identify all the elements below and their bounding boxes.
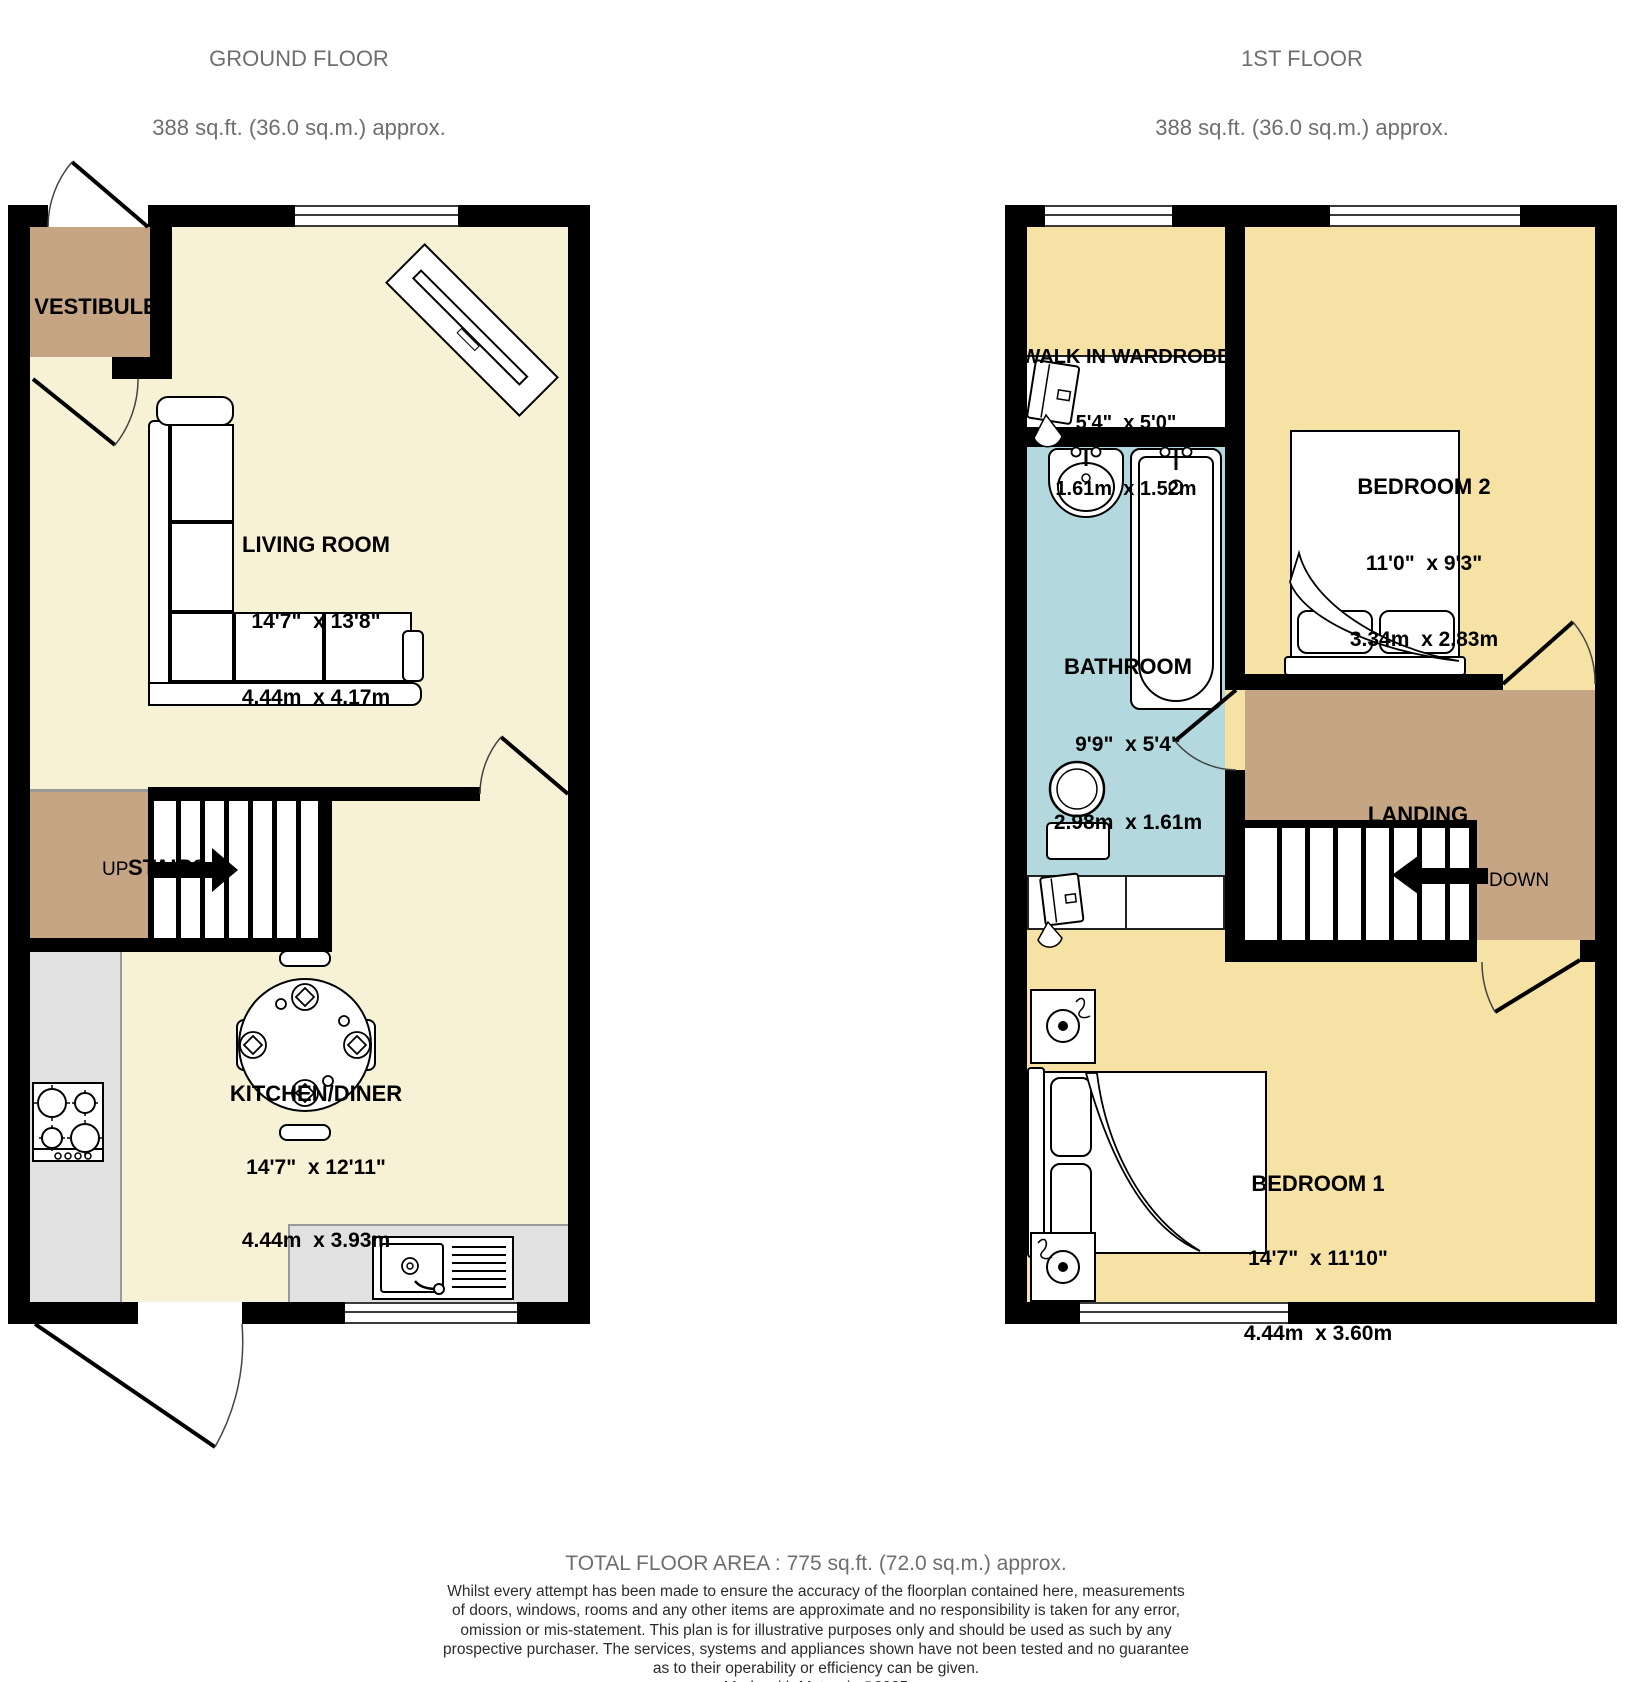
- hob-control-line: [34, 1148, 102, 1150]
- kitchen-window: [345, 1302, 517, 1324]
- gf-title-line1: GROUND FLOOR: [152, 47, 445, 70]
- down-label: DOWN: [1489, 868, 1549, 893]
- sofa-seat-corner: [170, 612, 234, 682]
- gf-title-line2: 388 sq.ft. (36.0 sq.m.) approx.: [152, 116, 445, 139]
- vestibule-label: VESTIBULE: [34, 294, 157, 319]
- gf-wall-bottom-2: [242, 1302, 345, 1324]
- disclaimer-line: omission or mis-statement. This plan is …: [0, 1621, 1632, 1640]
- gf-wall-right: [568, 205, 590, 1324]
- total-floor-area: TOTAL FLOOR AREA : 775 sq.ft. (72.0 sq.m…: [0, 1552, 1632, 1576]
- ff-wall-right: [1595, 205, 1617, 1324]
- rear-door-arc: [215, 1324, 243, 1447]
- disclaimer-line: prospective purchaser. The services, sys…: [0, 1640, 1632, 1659]
- sofa-armrest-right: [402, 630, 424, 682]
- sofa-seat: [170, 424, 234, 522]
- gf-wall-left: [8, 205, 30, 1324]
- wardrobe-label: WALK IN WARDROBE 5'4" x 5'0" 1.61m x 1.5…: [1022, 302, 1231, 544]
- bathroom-wall-lower: [1225, 770, 1245, 940]
- stairs-wall-right: [318, 787, 332, 952]
- disclaimer-line: as to their operability or efficiency ca…: [0, 1659, 1632, 1678]
- kitchen-diner-label: KITCHEN/DINER 14'7" x 12'11" 4.44m x 3.9…: [230, 1033, 402, 1303]
- vestibule-wall-bottom: [112, 357, 172, 379]
- entry-door-leaf: [72, 162, 148, 227]
- disclaimer-line: Whilst every attempt has been made to en…: [0, 1582, 1632, 1601]
- bedroom2-label: BEDROOM 2 11'0" x 9'3" 3.34m x 2.83m: [1350, 423, 1498, 704]
- stairs-threshold-line: [30, 789, 148, 792]
- landing-label: LANDING: [1368, 802, 1468, 827]
- up-arrow-head: [212, 848, 238, 892]
- bed1-headboard: [1027, 1067, 1045, 1258]
- entry-door-arc: [48, 162, 72, 227]
- disclaimer-line: of doors, windows, rooms and any other i…: [0, 1601, 1632, 1620]
- living-kitchen-divider: [148, 787, 480, 801]
- sofa-armrest-top: [156, 396, 234, 426]
- gf-wall-top-3: [458, 205, 568, 227]
- ff-wall-top-2: [1172, 205, 1330, 227]
- gf-wall-top-1: [8, 205, 48, 227]
- wardrobe-window: [1045, 205, 1172, 227]
- hob: [32, 1082, 104, 1162]
- ff-title-line1: 1ST FLOOR: [1155, 47, 1448, 70]
- living-room-window: [295, 205, 458, 227]
- sofa-seat: [170, 522, 234, 612]
- gf-wall-bottom-3: [517, 1302, 590, 1324]
- ff-wall-top-3: [1520, 205, 1617, 227]
- ff-title: 1ST FLOOR 388 sq.ft. (36.0 sq.m.) approx…: [1155, 1, 1448, 185]
- up-label: UP: [102, 857, 128, 882]
- ff-wall-bottom-1: [1005, 1302, 1080, 1324]
- disclaimer: Whilst every attempt has been made to en…: [0, 1582, 1632, 1682]
- gf-wall-bottom-1: [8, 1302, 138, 1324]
- bedroom2-window: [1330, 205, 1520, 227]
- vestibule-floor: [30, 227, 150, 357]
- down-arrow: [1422, 868, 1488, 884]
- up-arrow: [150, 862, 212, 878]
- gf-title: GROUND FLOOR 388 sq.ft. (36.0 sq.m.) app…: [152, 1, 445, 185]
- dining-chair: [279, 950, 331, 967]
- bathroom-label: BATHROOM 9'9" x 5'4" 2.98m x 1.61m: [1054, 602, 1202, 888]
- living-room-label: LIVING ROOM 14'7" x 13'8" 4.44m x 4.17m: [242, 481, 390, 762]
- understairs-wall: [1225, 940, 1477, 962]
- bedside-lamp-dot: [1058, 1262, 1068, 1272]
- floorplan-canvas: GROUND FLOOR 388 sq.ft. (36.0 sq.m.) app…: [0, 0, 1632, 1682]
- down-arrow-head: [1392, 853, 1422, 897]
- ff-title-line2: 388 sq.ft. (36.0 sq.m.) approx.: [1155, 116, 1448, 139]
- sofa-back-left: [148, 420, 170, 706]
- credit-line: Made with Metropix ©2025: [0, 1678, 1632, 1682]
- rear-door-leaf: [35, 1324, 215, 1447]
- bedroom1-label: BEDROOM 1 14'7" x 11'10" 4.44m x 3.60m: [1244, 1121, 1392, 1396]
- ff-wall-top-1: [1005, 205, 1045, 227]
- bedside-lamp-dot: [1058, 1021, 1068, 1031]
- bedroom1-door-stub: [1580, 940, 1595, 962]
- bed1-pillow: [1050, 1077, 1092, 1157]
- vestibule-wall-right: [150, 205, 172, 379]
